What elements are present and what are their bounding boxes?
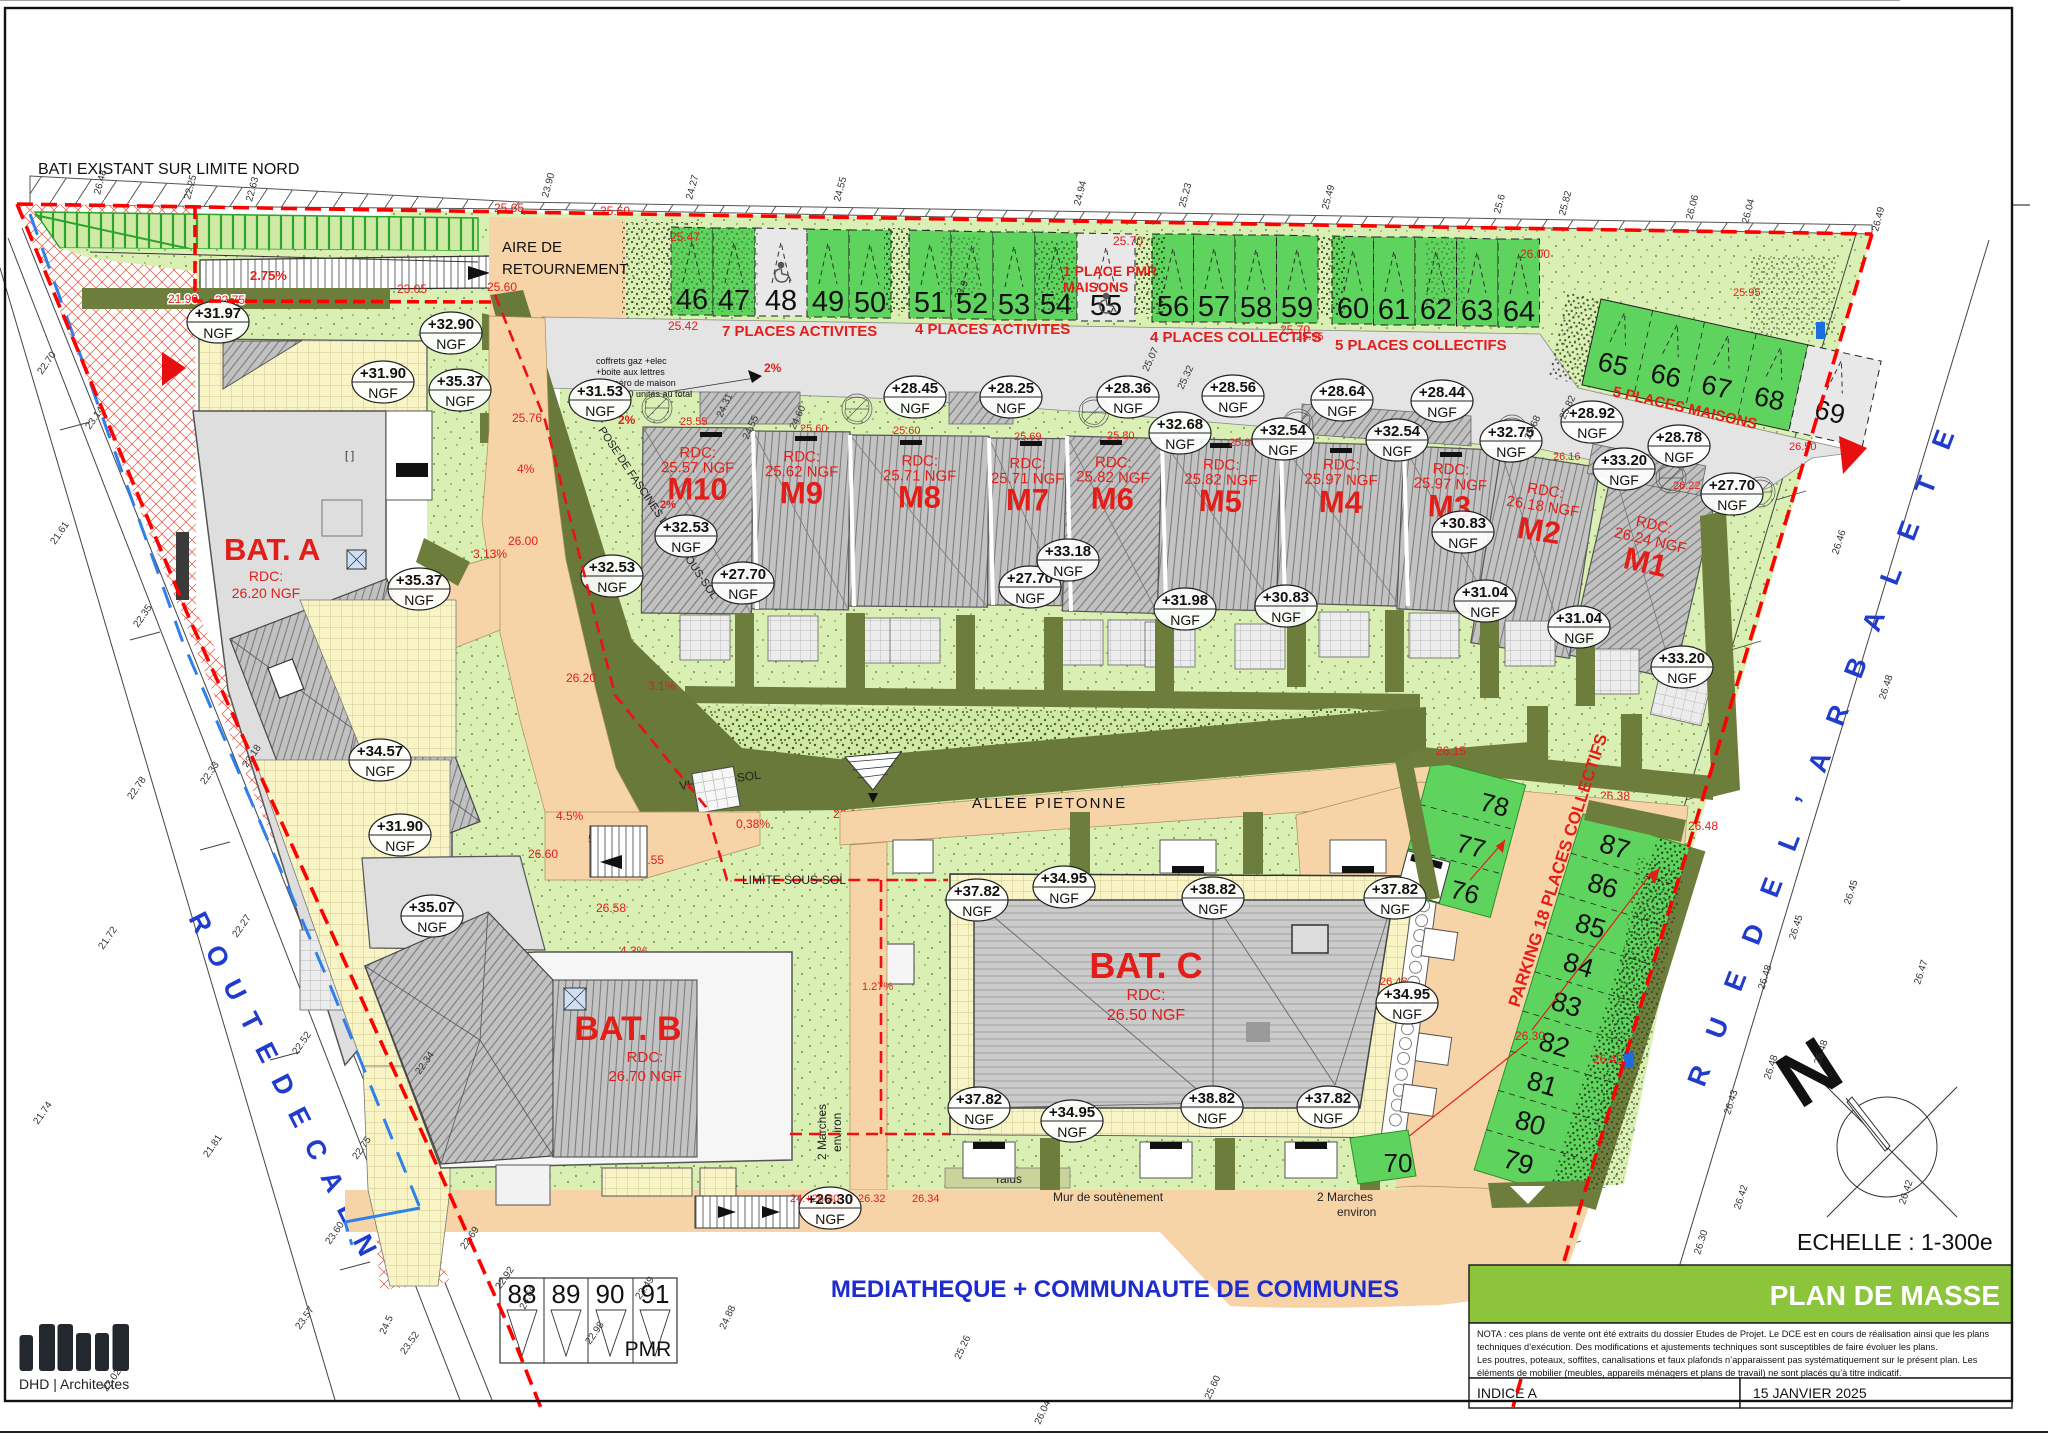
- svg-text:NGF: NGF: [1664, 449, 1694, 465]
- svg-text:26.34: 26.34: [912, 1193, 940, 1205]
- svg-text:PLAN DE MASSE: PLAN DE MASSE: [1770, 1280, 2000, 1311]
- svg-text:26.20 NGF: 26.20 NGF: [232, 585, 300, 601]
- svg-text:RETOURNEMENT: RETOURNEMENT: [502, 261, 628, 278]
- svg-text:PMR: PMR: [625, 1338, 672, 1361]
- svg-text:+28.25: +28.25: [988, 380, 1034, 397]
- svg-text:NOTA : ces plans de vente ont: NOTA : ces plans de vente ont été extrai…: [1477, 1329, 1989, 1339]
- svg-text:Mur de soutènement: Mur de soutènement: [1053, 1190, 1164, 1204]
- svg-text:MAISONS: MAISONS: [1063, 279, 1128, 295]
- svg-text:+37.82: +37.82: [956, 1091, 1002, 1108]
- svg-text:26.30: 26.30: [1515, 1029, 1545, 1043]
- svg-text:26.58: 26.58: [596, 901, 626, 915]
- svg-text:7 PLACES ACTIVITES: 7 PLACES ACTIVITES: [722, 323, 877, 340]
- svg-text:26.00: 26.00: [1520, 247, 1550, 261]
- svg-text:2.75%: 2.75%: [250, 268, 287, 283]
- svg-text:2%: 2%: [764, 361, 782, 375]
- svg-text:+31.90: +31.90: [360, 365, 406, 382]
- svg-text:NGF: NGF: [815, 1211, 845, 1227]
- svg-text:LIMITE SOUS-SOL: LIMITE SOUS-SOL: [742, 873, 846, 887]
- svg-text:NGF: NGF: [404, 592, 434, 608]
- svg-text:+34.57: +34.57: [357, 743, 403, 760]
- svg-text:BAT. B: BAT. B: [574, 1010, 681, 1048]
- svg-text:NGF: NGF: [1049, 890, 1079, 906]
- svg-text:4%: 4%: [517, 462, 535, 476]
- svg-text:AIRE DE: AIRE DE: [502, 239, 562, 256]
- svg-text:+37.82: +37.82: [1372, 881, 1418, 898]
- svg-text:NGF: NGF: [996, 400, 1026, 416]
- svg-text:+31.90: +31.90: [377, 818, 423, 835]
- svg-text:NGF: NGF: [1057, 1124, 1087, 1140]
- svg-text:ALLEE PIETONNE: ALLEE PIETONNE: [972, 795, 1127, 812]
- svg-text:25.80: 25.80: [1107, 430, 1135, 442]
- svg-text:NGF: NGF: [964, 1111, 994, 1127]
- svg-text:NGF: NGF: [728, 586, 758, 602]
- svg-text:+35.37: +35.37: [437, 373, 483, 390]
- svg-text:63: 63: [1461, 295, 1493, 327]
- svg-text:5 PLACES COLLECTIFS: 5 PLACES COLLECTIFS: [1335, 337, 1507, 354]
- svg-text:BAT. C: BAT. C: [1089, 945, 1202, 986]
- svg-text:MEDIATHEQUE + COMMUNAUTE DE CO: MEDIATHEQUE + COMMUNAUTE DE COMMUNES: [831, 1276, 1399, 1303]
- svg-text:NGF: NGF: [1165, 436, 1195, 452]
- svg-text:2 Marches: 2 Marches: [815, 1104, 829, 1160]
- svg-text:ECHELLE : 1-300e: ECHELLE : 1-300e: [1797, 1229, 1993, 1255]
- svg-text:environ: environ: [1337, 1205, 1376, 1219]
- svg-text:INDICE A: INDICE A: [1477, 1385, 1538, 1401]
- svg-text:26.48: 26.48: [1688, 819, 1718, 833]
- svg-text:RDC:: RDC:: [627, 1049, 664, 1066]
- svg-text:26.20: 26.20: [566, 671, 596, 685]
- svg-text:25.55: 25.55: [680, 416, 708, 428]
- svg-text:25.76: 25.76: [512, 411, 542, 425]
- svg-text:57: 57: [1198, 291, 1230, 323]
- svg-text:26.32: 26.32: [858, 1193, 886, 1205]
- svg-text:NGF: NGF: [962, 903, 992, 919]
- svg-text:NGF: NGF: [1053, 563, 1083, 579]
- svg-text:26.00: 26.00: [508, 534, 538, 548]
- svg-text:64: 64: [1503, 296, 1535, 328]
- svg-text:15 JANVIER 2025: 15 JANVIER 2025: [1753, 1385, 1867, 1401]
- svg-text:+32.53: +32.53: [589, 559, 635, 576]
- svg-text:NGF: NGF: [1427, 404, 1457, 420]
- svg-text:+35.07: +35.07: [409, 899, 455, 916]
- svg-text:NGF: NGF: [385, 838, 415, 854]
- svg-text:+28.56: +28.56: [1210, 379, 1256, 396]
- svg-text:+30.83: +30.83: [1263, 589, 1309, 606]
- svg-text:+38.82: +38.82: [1189, 1090, 1235, 1107]
- svg-text:NGF: NGF: [1717, 497, 1747, 513]
- svg-text:+34.95: +34.95: [1041, 870, 1087, 887]
- svg-text:+37.82: +37.82: [954, 883, 1000, 900]
- svg-text:+32.53: +32.53: [663, 519, 709, 536]
- svg-text:26.60: 26.60: [528, 847, 558, 861]
- svg-text:NGF: NGF: [1197, 1110, 1227, 1126]
- svg-text:BAT. A: BAT. A: [224, 532, 320, 567]
- svg-text:+27.70: +27.70: [1709, 477, 1755, 494]
- svg-text:+28.45: +28.45: [892, 380, 938, 397]
- svg-text:+34.95: +34.95: [1049, 1104, 1095, 1121]
- svg-text:26.70 NGF: 26.70 NGF: [608, 1068, 681, 1085]
- svg-text:coffrets gaz +elec: coffrets gaz +elec: [596, 356, 667, 366]
- svg-text:éléments de mobilier (meubles,: éléments de mobilier (meubles, appareils…: [1477, 1368, 1901, 1378]
- svg-text:NGF: NGF: [1015, 590, 1045, 606]
- svg-text:+30.83: +30.83: [1440, 515, 1486, 532]
- svg-text:+33.18: +33.18: [1045, 543, 1091, 560]
- svg-text:25.60: 25.60: [600, 204, 630, 218]
- svg-text:50: 50: [854, 287, 886, 319]
- svg-text:+28.78: +28.78: [1656, 429, 1702, 446]
- svg-text:+28.64: +28.64: [1319, 383, 1366, 400]
- svg-text:1 PLACE PMR: 1 PLACE PMR: [1063, 263, 1157, 279]
- svg-text:+34.95: +34.95: [1384, 986, 1430, 1003]
- svg-text:M4: M4: [1318, 484, 1363, 520]
- svg-text:RDC:: RDC:: [249, 568, 283, 584]
- svg-text:25.95: 25.95: [1733, 287, 1761, 299]
- svg-text:1.27%: 1.27%: [862, 981, 893, 993]
- svg-text:+28.36: +28.36: [1105, 380, 1151, 397]
- svg-text:25.47: 25.47: [670, 230, 700, 244]
- svg-text:+31.04: +31.04: [1556, 610, 1603, 627]
- svg-text:26.22: 26.22: [1673, 480, 1701, 492]
- svg-text:M2: M2: [1515, 510, 1563, 551]
- svg-text:NGF: NGF: [1113, 400, 1143, 416]
- svg-text:NGF: NGF: [1448, 535, 1478, 551]
- svg-text:NGF: NGF: [1380, 901, 1410, 917]
- svg-text:+38.82: +38.82: [1190, 881, 1236, 898]
- svg-text:48: 48: [765, 285, 797, 317]
- svg-text:+27.70: +27.70: [720, 566, 766, 583]
- svg-text:NGF: NGF: [1496, 444, 1526, 460]
- svg-text:NGF: NGF: [1382, 443, 1412, 459]
- svg-text:NGF: NGF: [1609, 472, 1639, 488]
- svg-text:26.16: 26.16: [1553, 451, 1581, 463]
- svg-text:26.50 NGF: 26.50 NGF: [1107, 1007, 1185, 1024]
- svg-text:M7: M7: [1006, 482, 1049, 517]
- svg-text:3.1%: 3.1%: [648, 679, 676, 693]
- svg-text:NGF: NGF: [365, 763, 395, 779]
- svg-text:67: 67: [1699, 369, 1735, 405]
- svg-text:26.50: 26.50: [1789, 441, 1817, 453]
- svg-text:+31.97: +31.97: [195, 305, 241, 322]
- svg-text:49: 49: [812, 286, 844, 318]
- svg-text:NGF: NGF: [203, 325, 233, 341]
- svg-text:M5: M5: [1198, 483, 1242, 519]
- svg-text:NGF: NGF: [1392, 1006, 1422, 1022]
- svg-text:NGF: NGF: [1577, 425, 1607, 441]
- svg-text:+28.44: +28.44: [1419, 384, 1466, 401]
- svg-text:+28.92: +28.92: [1569, 405, 1615, 422]
- svg-text:4.5%: 4.5%: [556, 809, 584, 823]
- svg-text:NGF: NGF: [368, 385, 398, 401]
- svg-text:+33.20: +33.20: [1659, 650, 1705, 667]
- svg-text:NGF: NGF: [585, 403, 615, 419]
- svg-text:M8: M8: [898, 479, 941, 514]
- svg-text:RDC:: RDC:: [1126, 987, 1165, 1004]
- svg-text:Les poutres, poteaux, soffites: Les poutres, poteaux, soffites, canalisa…: [1477, 1355, 1978, 1365]
- svg-text:[ ]: [ ]: [345, 450, 354, 462]
- svg-text:25.42: 25.42: [668, 319, 698, 333]
- svg-text:69: 69: [1812, 394, 1848, 430]
- svg-text:68: 68: [1751, 381, 1787, 417]
- svg-text:2%: 2%: [660, 499, 676, 511]
- svg-text:M10: M10: [667, 471, 728, 507]
- svg-text:+31.53: +31.53: [577, 383, 623, 400]
- svg-text:25.70: 25.70: [1113, 234, 1143, 248]
- svg-text:+35.37: +35.37: [396, 572, 442, 589]
- svg-text:+31.98: +31.98: [1162, 592, 1208, 609]
- svg-text:25.60: 25.60: [893, 425, 921, 437]
- svg-text:4 PLACES ACTIVITES: 4 PLACES ACTIVITES: [915, 321, 1070, 338]
- svg-text:NGF: NGF: [1470, 604, 1500, 620]
- svg-text:+32.54: +32.54: [1374, 423, 1421, 440]
- svg-text:NGF: NGF: [1268, 442, 1298, 458]
- svg-text:70: 70: [1384, 1148, 1413, 1178]
- svg-text:2 Marches: 2 Marches: [1317, 1190, 1373, 1204]
- svg-text:techniques d’exécution. Des mo: techniques d’exécution. Des modification…: [1477, 1342, 1938, 1352]
- svg-text:90: 90: [596, 1279, 625, 1309]
- svg-text:26.15: 26.15: [1436, 744, 1466, 758]
- svg-text:+32.90: +32.90: [428, 316, 474, 333]
- svg-text:58: 58: [1240, 292, 1272, 324]
- svg-text:59: 59: [1281, 292, 1313, 324]
- svg-text:+boite aux lettres: +boite aux lettres: [596, 367, 665, 377]
- svg-text:+32.68: +32.68: [1157, 416, 1203, 433]
- svg-text:NGF: NGF: [1218, 399, 1248, 415]
- svg-text:25.69: 25.69: [1014, 431, 1042, 443]
- svg-text:0,38%: 0,38%: [736, 817, 770, 831]
- svg-text:+31.04: +31.04: [1462, 584, 1509, 601]
- svg-text:environ: environ: [830, 1113, 844, 1152]
- svg-text:NGF: NGF: [1271, 609, 1301, 625]
- svg-text:NGF: NGF: [597, 579, 627, 595]
- svg-text:+32.54: +32.54: [1260, 422, 1307, 439]
- svg-text:26.40: 26.40: [1593, 1052, 1623, 1066]
- svg-text:25.95: 25.95: [1296, 331, 1324, 343]
- svg-text:NGF: NGF: [1170, 612, 1200, 628]
- svg-text:M9: M9: [780, 475, 823, 510]
- svg-text:61: 61: [1378, 294, 1410, 326]
- svg-text:89: 89: [552, 1279, 581, 1309]
- svg-text:+37.82: +37.82: [1305, 1090, 1351, 1107]
- svg-text:NGF: NGF: [1198, 901, 1228, 917]
- svg-text:NGF: NGF: [671, 539, 701, 555]
- svg-text:53: 53: [998, 289, 1030, 321]
- svg-text:NGF: NGF: [1313, 1110, 1343, 1126]
- svg-text:65: 65: [1595, 346, 1631, 382]
- svg-text:NGF: NGF: [436, 336, 466, 352]
- svg-text:NGF: NGF: [417, 919, 447, 935]
- svg-text:3,13%: 3,13%: [473, 547, 507, 561]
- svg-text:24.+26.30: 24.+26.30: [790, 1193, 839, 1205]
- svg-text:66: 66: [1648, 358, 1684, 394]
- svg-text:25.60: 25.60: [800, 423, 828, 435]
- svg-text:NGF: NGF: [1564, 630, 1594, 646]
- svg-text:NGF: NGF: [1327, 403, 1357, 419]
- svg-text:NGF: NGF: [445, 393, 475, 409]
- svg-text:NGF: NGF: [1667, 670, 1697, 686]
- svg-text:BATI EXISTANT SUR LIMITE NORD: BATI EXISTANT SUR LIMITE NORD: [38, 161, 299, 178]
- svg-text:NGF: NGF: [900, 400, 930, 416]
- svg-text:23.05: 23.05: [397, 282, 427, 296]
- svg-text:M6: M6: [1090, 481, 1134, 517]
- svg-text:+33.20: +33.20: [1601, 452, 1647, 469]
